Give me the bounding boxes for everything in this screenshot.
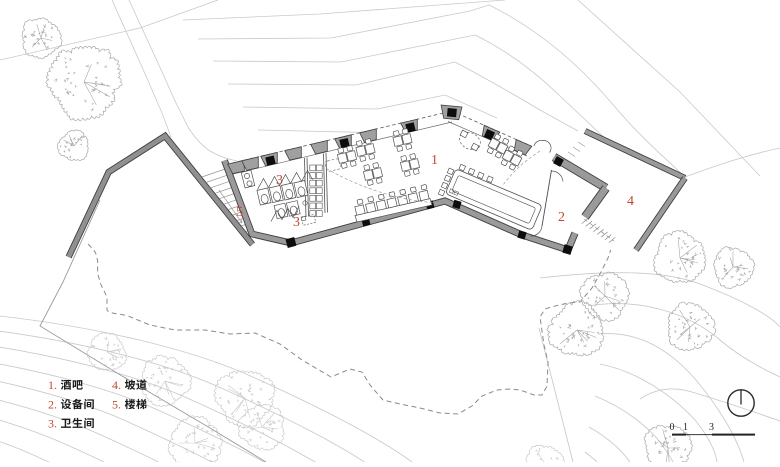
svg-text:3: 3	[293, 215, 300, 230]
svg-text:4.: 4.	[112, 378, 121, 392]
svg-text:1: 1	[431, 153, 438, 168]
svg-text:5.: 5.	[112, 398, 121, 412]
svg-text:2.: 2.	[48, 398, 57, 412]
svg-text:2: 2	[558, 210, 565, 225]
svg-text:1: 1	[683, 422, 688, 433]
svg-text:5: 5	[236, 205, 243, 220]
svg-text:1.: 1.	[48, 378, 57, 392]
svg-text:0: 0	[670, 422, 675, 433]
svg-text:3.: 3.	[48, 417, 57, 431]
svg-text:4: 4	[627, 194, 634, 209]
svg-text:3: 3	[709, 422, 714, 433]
svg-text:3: 3	[276, 173, 283, 188]
